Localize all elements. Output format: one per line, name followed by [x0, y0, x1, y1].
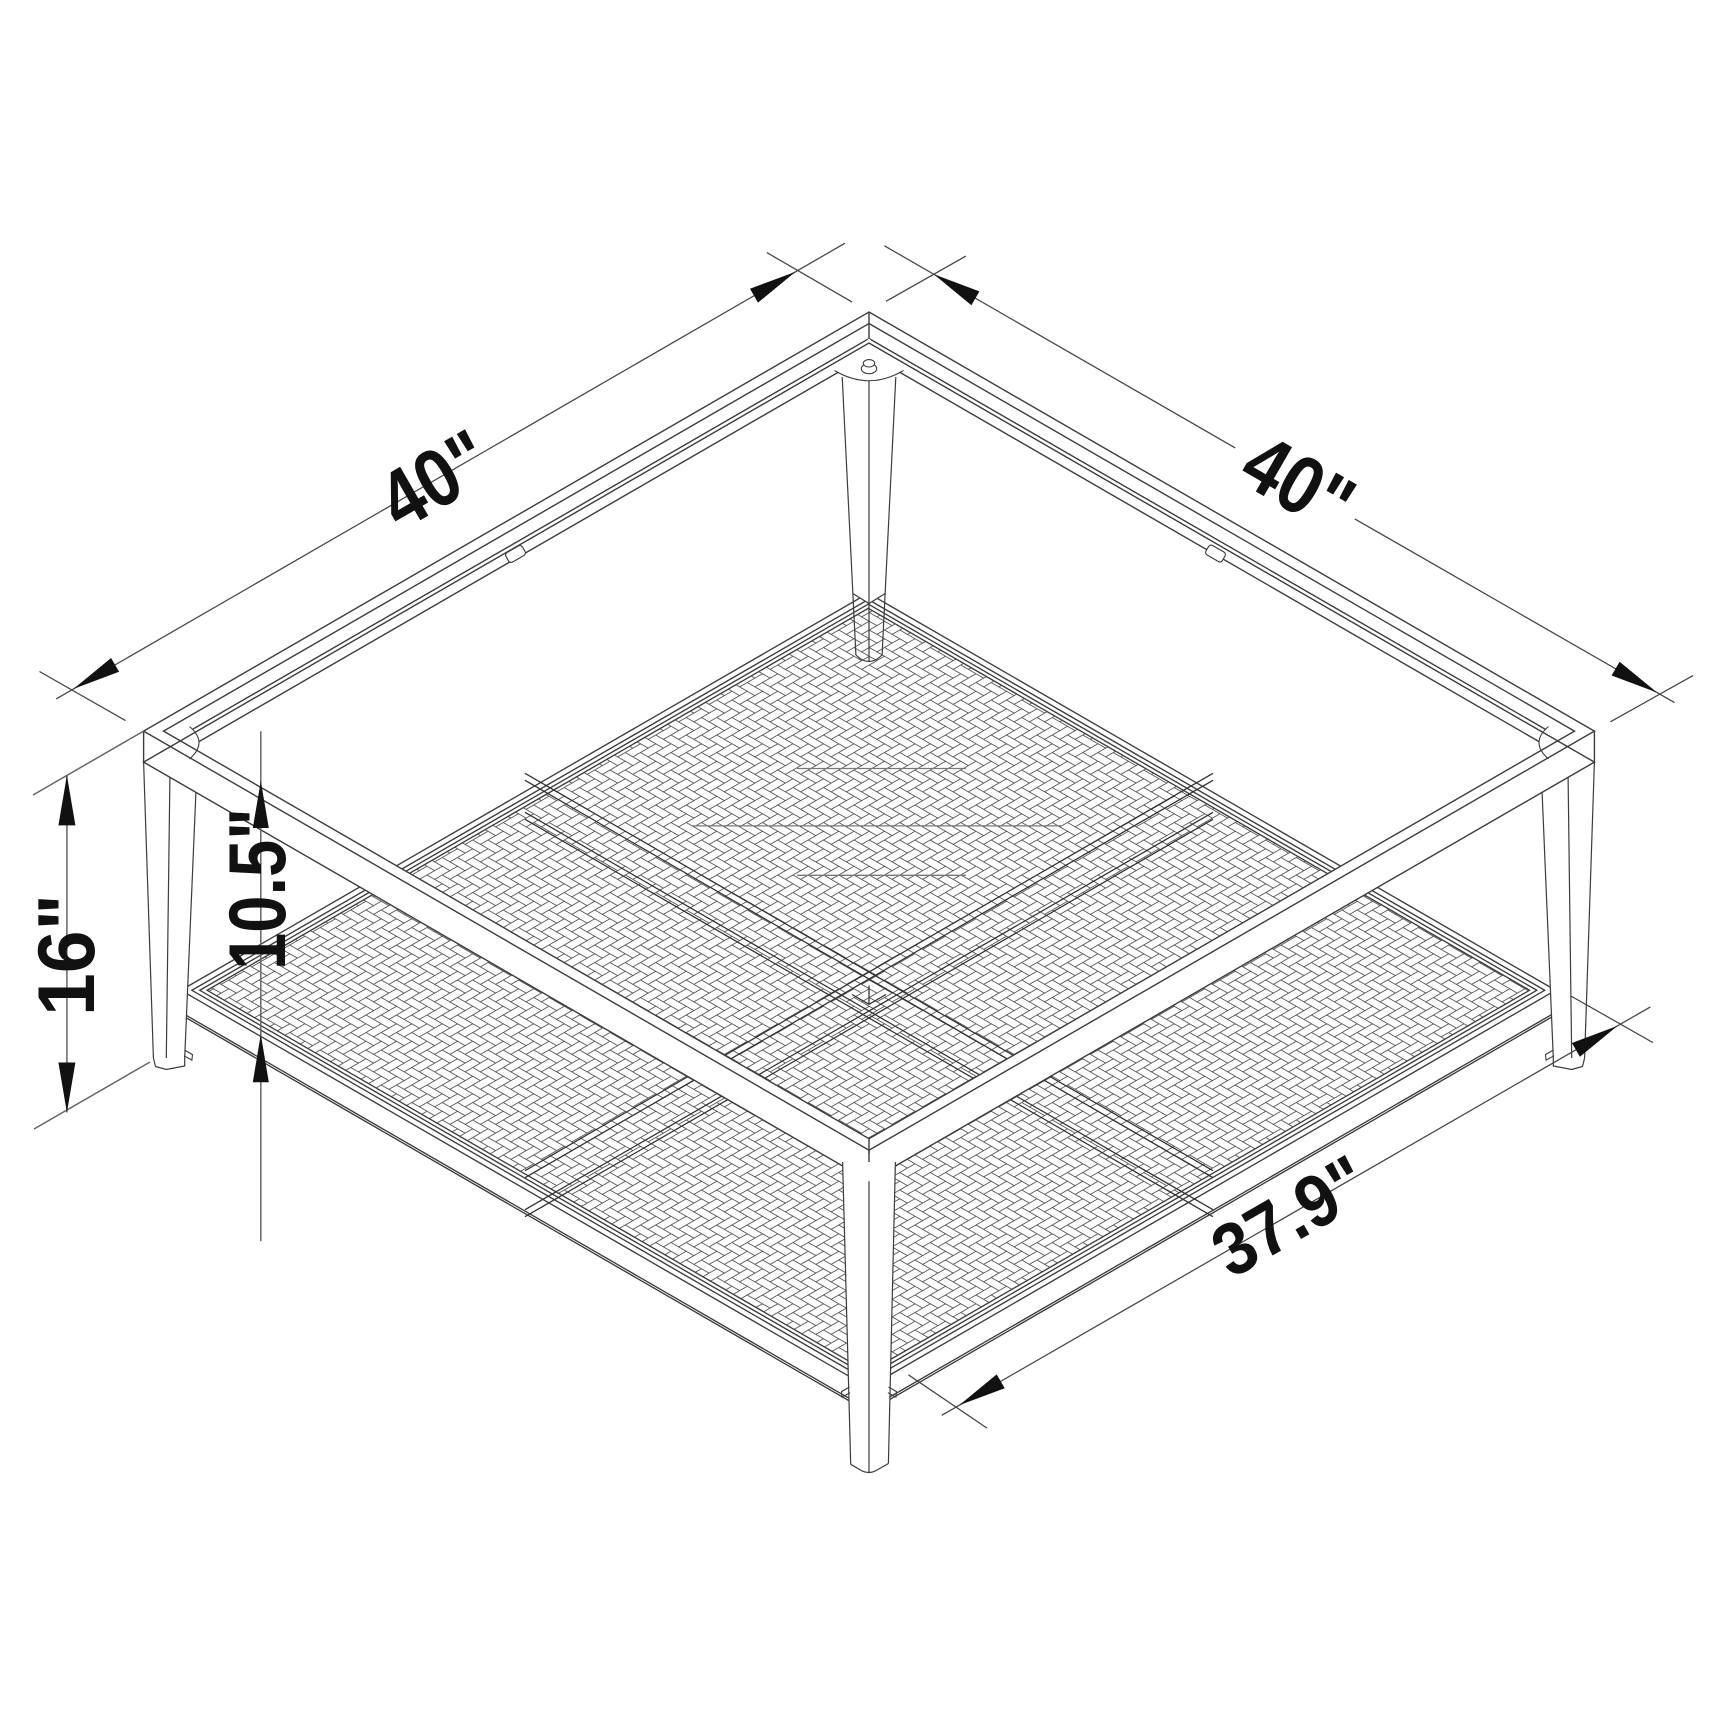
svg-text:16": 16" [22, 894, 112, 1016]
svg-text:10.5": 10.5" [213, 808, 303, 970]
